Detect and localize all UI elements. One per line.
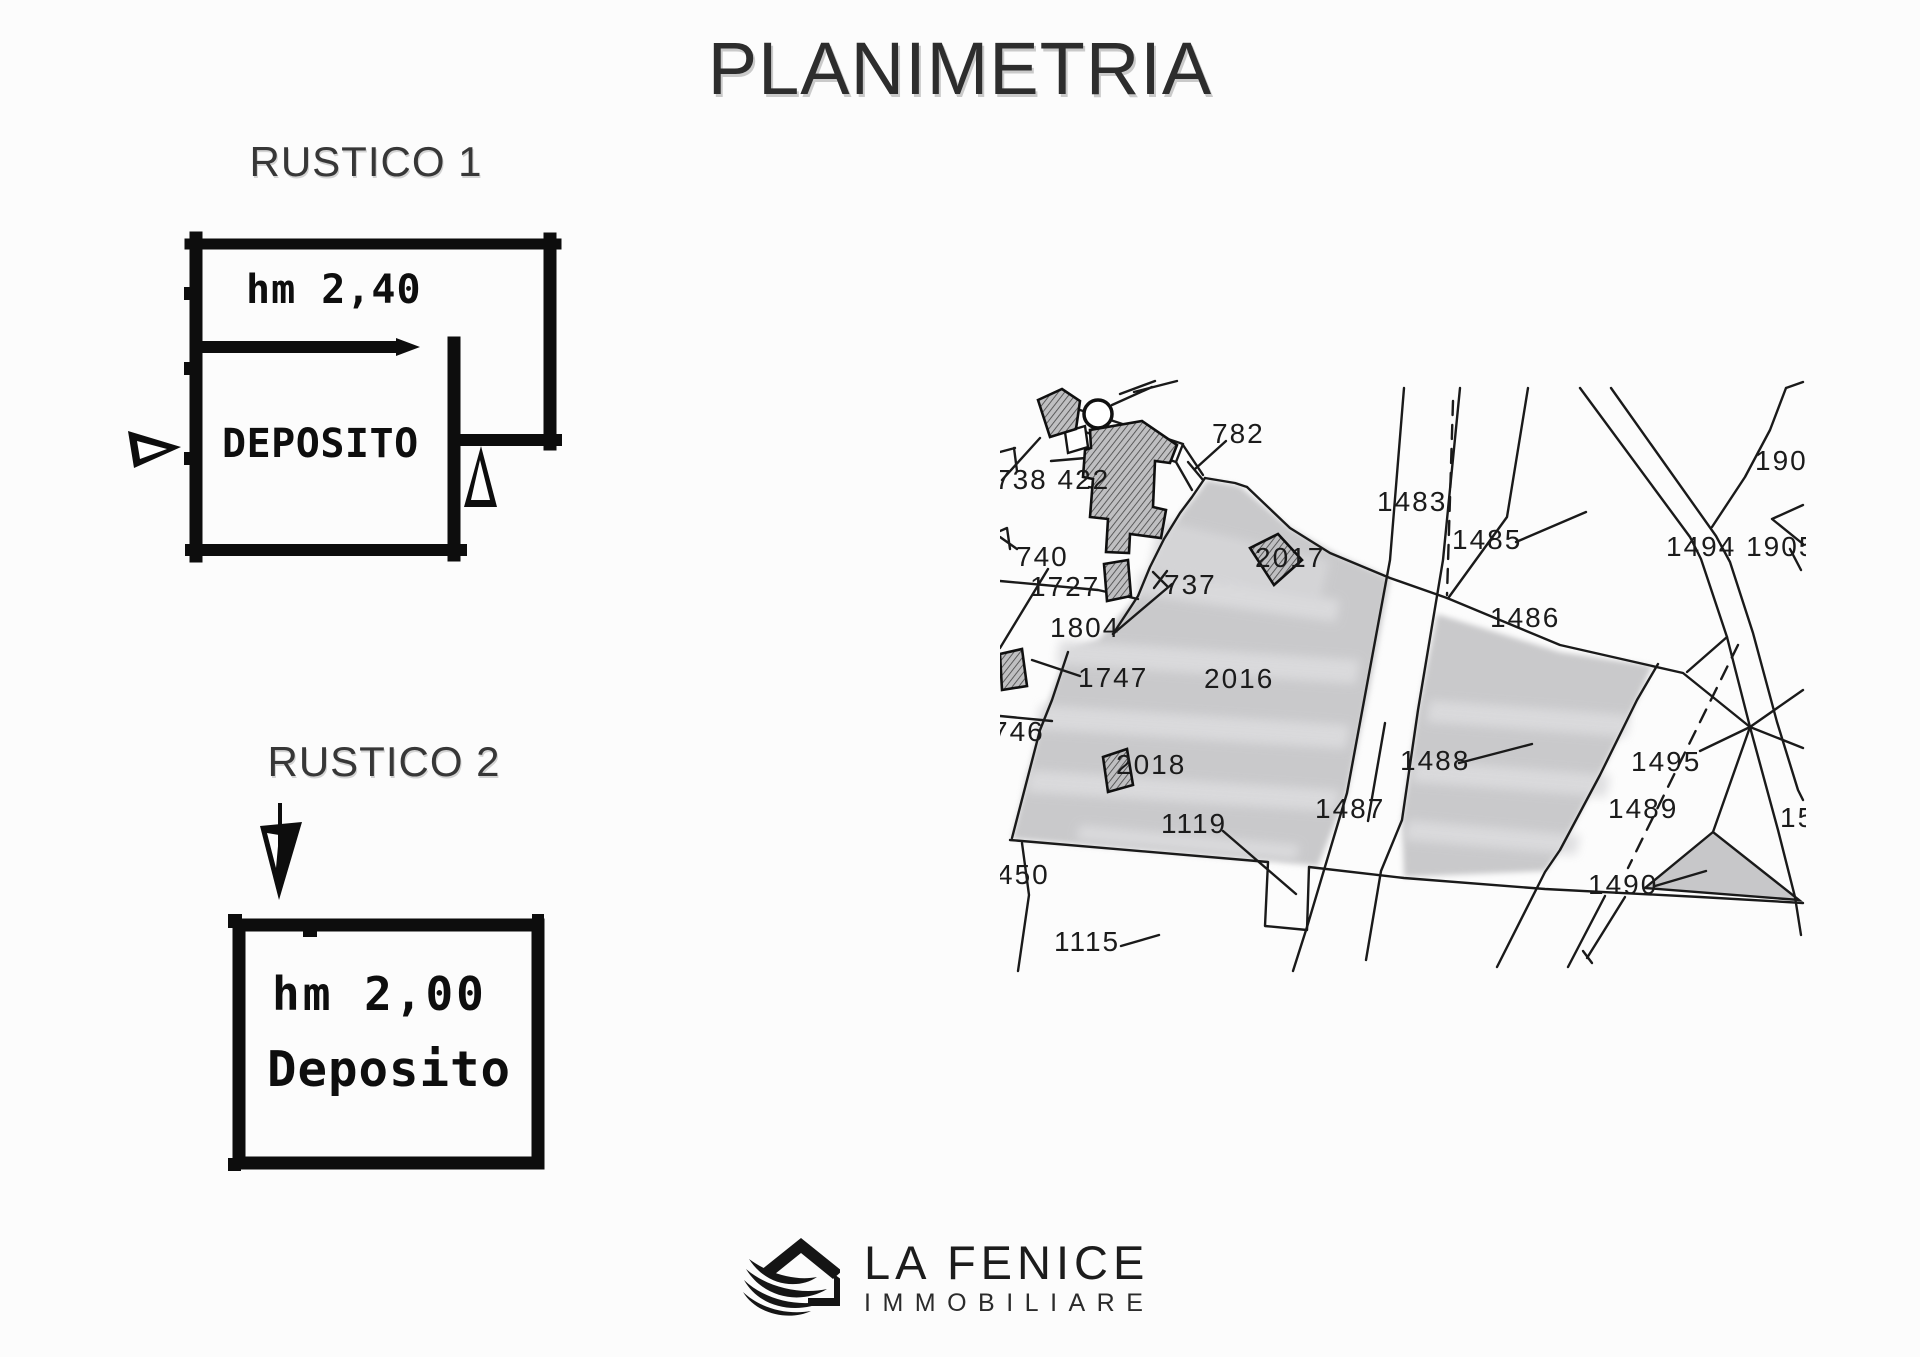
- parcel-label-15: 15: [1780, 802, 1806, 833]
- door-wall-tip: [396, 338, 420, 356]
- logo-name: LA FENICE: [864, 1239, 1154, 1286]
- entrance-arrow-down-icon: [260, 803, 302, 900]
- parcel-label-1485: 1485: [1452, 524, 1522, 555]
- logo-subtitle: IMMOBILIARE: [864, 1291, 1154, 1316]
- rustico2-floorplan: hm 2,00 Deposito: [180, 740, 600, 1185]
- parcel-label-190: 190: [1755, 445, 1806, 476]
- entrance-arrow-up-icon: [464, 446, 497, 507]
- cadastral-map: 782738 422148314851901494 19057401727737…: [1000, 378, 1806, 978]
- rustico1-floorplan: hm 2,40 DEPOSITO: [110, 220, 580, 580]
- map-circle-mark: [1084, 400, 1112, 428]
- parcel-label-2018: 2018: [1116, 749, 1186, 780]
- parcel-label-1487: 1487: [1315, 793, 1385, 824]
- agency-logo: LA FENICE IMMOBILIARE: [740, 1222, 1200, 1332]
- room2-name: Deposito: [267, 1041, 511, 1098]
- rustico1-title: RUSTICO 1: [206, 138, 526, 186]
- entrance-arrow-left-icon: [128, 431, 181, 468]
- parcel-label-1119: 1119: [1161, 808, 1227, 839]
- parcel-label-1483: 1483: [1377, 486, 1447, 517]
- parcel-label-1486: 1486: [1490, 602, 1560, 633]
- building-left-edge: [1000, 649, 1027, 690]
- parcel-label-1747: 1747: [1078, 662, 1148, 693]
- parcel-label-738-422: 738 422: [1000, 464, 1110, 495]
- parcel-label-737: 737: [1164, 569, 1217, 600]
- parcel-label-1727: 1727: [1030, 571, 1100, 602]
- parcel-label-1495: 1495: [1631, 746, 1701, 777]
- planimetria-sheet: { "title": "PLANIMETRIA", "rustico1": { …: [0, 0, 1920, 1357]
- parcel-label-1494-1905: 1494 1905: [1666, 531, 1806, 562]
- parcel-label-1804: 1804: [1050, 612, 1120, 643]
- parcel-label-450: 450: [1000, 859, 1050, 890]
- parcel-label-740: 740: [1016, 541, 1069, 572]
- parcel-1490-area: [1645, 832, 1799, 900]
- parcel-label-2016: 2016: [1204, 663, 1274, 694]
- room2-height-note: hm 2,00: [272, 967, 487, 1021]
- building-hatched-1: [1038, 389, 1080, 437]
- parcel-label-1489: 1489: [1608, 793, 1678, 824]
- parcel-label-1488: 1488: [1400, 745, 1470, 776]
- parcel-label-782: 782: [1212, 418, 1265, 449]
- room1-height-note: hm 2,40: [246, 267, 422, 313]
- parcel-label-1115: 1115: [1054, 926, 1120, 957]
- parcel-label-746: 746: [1000, 716, 1045, 747]
- page-title: PLANIMETRIA: [0, 26, 1920, 111]
- room1-name: DEPOSITO: [222, 421, 419, 467]
- parcel-label-1490: 1490: [1588, 869, 1658, 900]
- winged-house-icon: [740, 1232, 840, 1322]
- parcel-label-2017: 2017: [1255, 542, 1325, 573]
- building-hatched-2: [1104, 560, 1131, 601]
